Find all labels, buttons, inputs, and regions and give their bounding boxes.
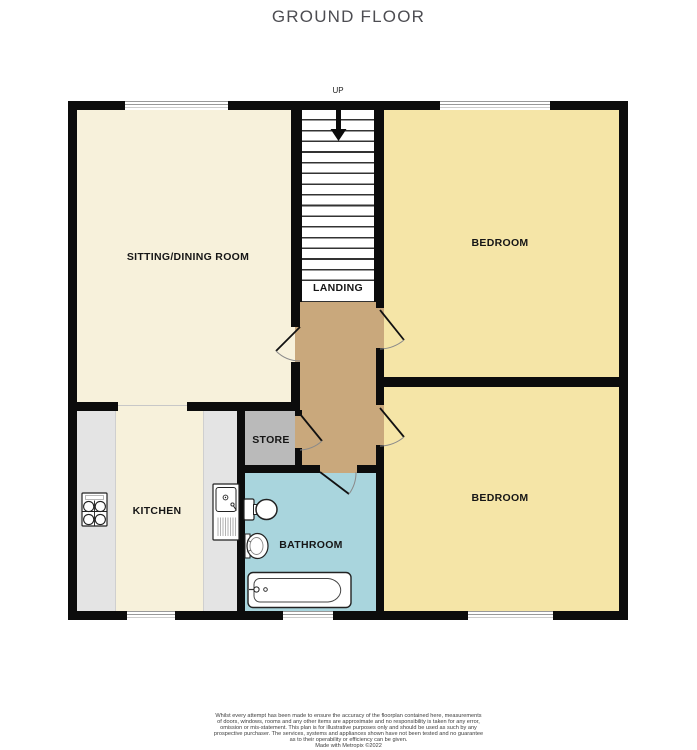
wall-segment (77, 402, 118, 411)
wall-segment (237, 465, 320, 473)
page-title: GROUND FLOOR (0, 7, 697, 27)
landing-label: LANDING (302, 281, 374, 295)
wall-segment (295, 448, 302, 465)
wall-segment (376, 387, 384, 405)
window (468, 611, 553, 620)
room-label-bathroom: BATHROOM (279, 539, 342, 551)
window (283, 611, 333, 620)
wall-segment (295, 410, 302, 416)
room-label-kitchen: KITCHEN (133, 505, 182, 517)
wall-segment (291, 110, 300, 327)
room-label-sitting-dining: SITTING/DINING ROOM (127, 251, 249, 263)
wall-segment (376, 445, 384, 611)
window (127, 611, 175, 620)
room-label-bedroom-bottom: BEDROOM (472, 492, 529, 504)
floor-plan: GROUND FLOOR (0, 0, 697, 750)
room-label-bedroom-top: BEDROOM (472, 237, 529, 249)
stairs-up-label: UP (324, 86, 352, 95)
wall-segment (237, 410, 245, 611)
wall-segment (376, 377, 619, 387)
window (440, 101, 550, 110)
credit-line: Made with Metropix ©2022 (0, 743, 697, 749)
outer-wall (68, 101, 628, 620)
window (125, 101, 228, 110)
room-label-store: STORE (252, 434, 289, 446)
wall-segment (376, 110, 384, 308)
disclaimer: Whilst every attempt has been made to en… (0, 713, 697, 750)
